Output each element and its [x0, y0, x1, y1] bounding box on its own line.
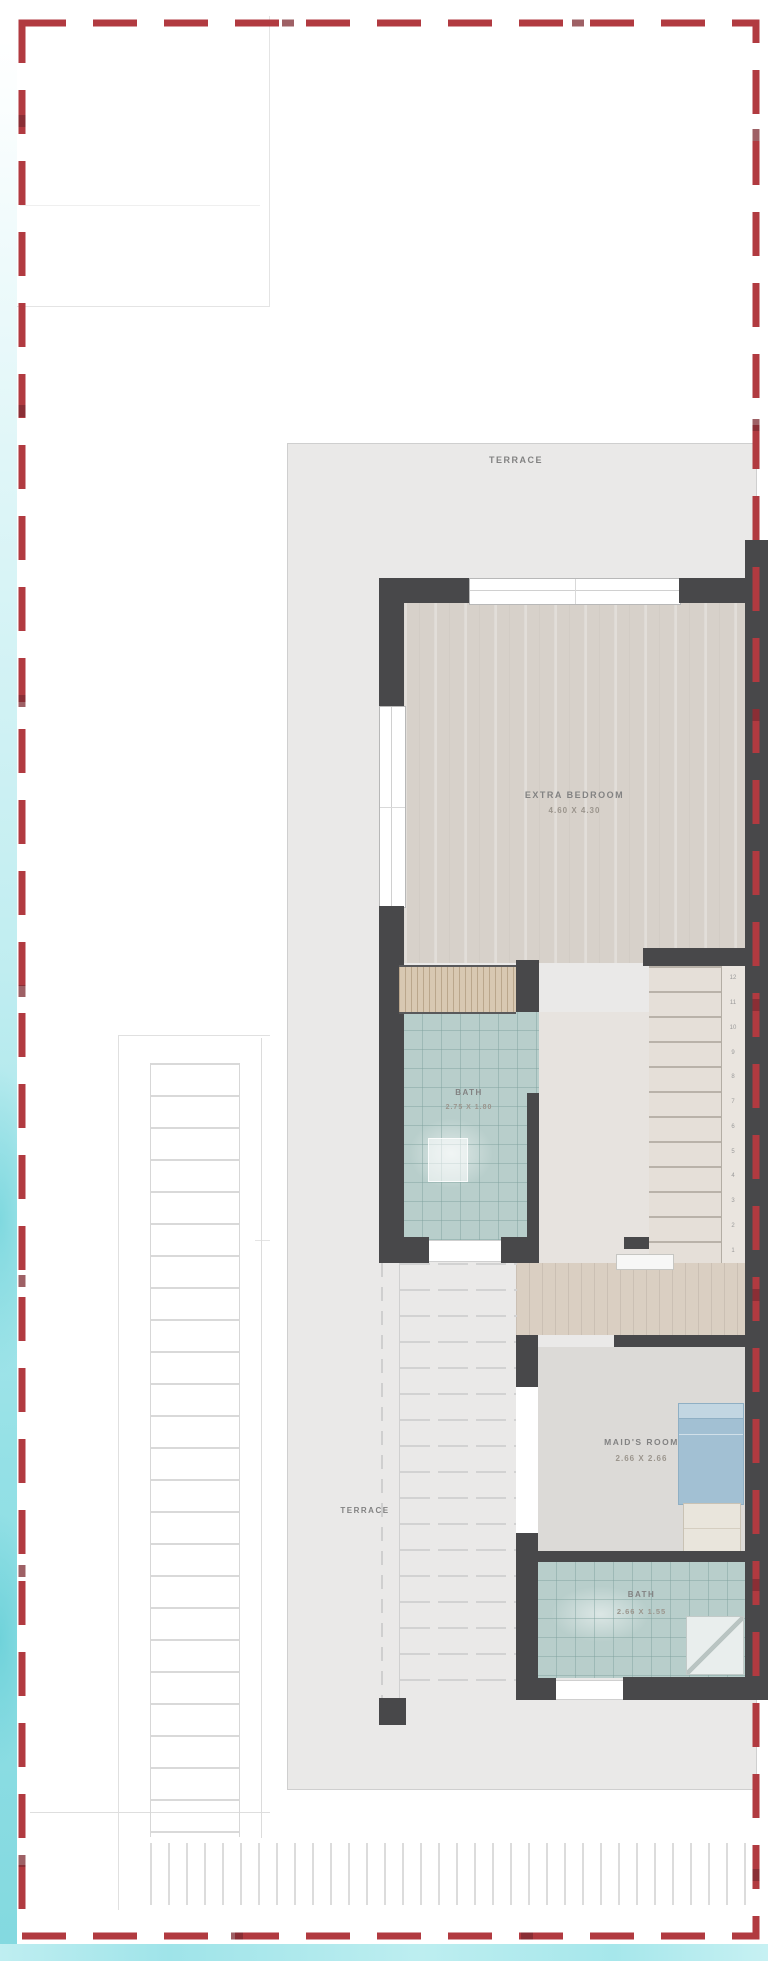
terrace-side-label: TERRACE [300, 1506, 430, 1515]
corner-pillar [379, 1698, 406, 1725]
stair-step-number: 4 [721, 1164, 745, 1189]
bath1-right-wall [527, 1093, 539, 1240]
stair-step-number: 9 [721, 1040, 745, 1065]
hall-floor [539, 1012, 649, 1263]
bath1-floor [404, 1012, 539, 1240]
maids-top-wall [614, 1335, 745, 1347]
right-boundary-wall [745, 540, 768, 1700]
bath2-bottom-wall-left [519, 1678, 556, 1700]
maids-room-label: MAID'S ROOM [538, 1437, 745, 1447]
stair-step-number: 5 [721, 1139, 745, 1164]
pergola-rail [261, 1038, 262, 1838]
bedroom-window-top [469, 578, 681, 605]
terrace-top-label: TERRACE [287, 455, 745, 465]
stairs-top-wall [643, 948, 745, 966]
left-wall-lower [379, 906, 404, 1263]
bath1-bottom-wall-right [501, 1237, 539, 1263]
bedroom-floor [404, 603, 745, 963]
bedroom-wall-left-upper [379, 578, 404, 706]
extra-bedroom-label: EXTRA BEDROOM [404, 790, 745, 800]
maids-bottom-wall [538, 1551, 745, 1562]
bath2-dims: 2.66 X 1.55 [538, 1607, 745, 1616]
extra-bedroom-dims: 4.60 X 4.30 [404, 806, 745, 815]
stair-step-number: 3 [721, 1189, 745, 1214]
bath2-bottom-wall-right [623, 1677, 746, 1700]
stair-step-number: 6 [721, 1115, 745, 1140]
watercolor-bottom-strip [0, 1944, 768, 1961]
maids-left-wall-lower [516, 1533, 538, 1700]
bath2-shower [686, 1616, 744, 1675]
floorplan-canvas: TERRACE EXTRA BEDROOM 4.60 X 4.30 121110… [0, 0, 768, 1961]
bedroom-window-left [379, 706, 406, 908]
terrace-side-hatch [399, 1263, 517, 1700]
stair-step-number: 7 [721, 1090, 745, 1115]
bedroom-wall-top-right [679, 578, 745, 603]
stairs-treads [649, 966, 721, 1263]
stair-step-number: 1 [721, 1238, 745, 1263]
stairs-step-numbers: 121110987654321 [721, 966, 745, 1263]
stair-step-number: 2 [721, 1214, 745, 1239]
maids-room-dims: 2.66 X 2.66 [538, 1454, 745, 1463]
bath1-shower-tray [428, 1138, 468, 1182]
bath1-label: BATH [404, 1088, 534, 1097]
closet-shelves [399, 965, 516, 1014]
bath2-door-opening [556, 1680, 623, 1700]
stair-step-number: 12 [721, 966, 745, 991]
bg-guideline-h-upper [20, 205, 260, 206]
stair-step-number: 10 [721, 1016, 745, 1041]
closet-end-wall [516, 960, 539, 1012]
landing-floor [516, 1263, 745, 1335]
site-boundary-v [118, 1035, 119, 1910]
stairs-base-cabinet [616, 1254, 674, 1270]
stair-step-number: 11 [721, 991, 745, 1016]
terrace-edge-dashed-line [381, 1263, 383, 1700]
maids-dresser [683, 1503, 741, 1552]
stairs-bottom-wall-piece [624, 1237, 649, 1249]
bath1-dims: 2.75 X 1.80 [404, 1104, 534, 1111]
maids-left-wall-upper [516, 1335, 538, 1387]
bath2-label: BATH [538, 1590, 745, 1599]
fence-band [150, 1843, 748, 1905]
bath1-bottom-wall-left [379, 1237, 429, 1263]
bg-guideline-v-upper [269, 16, 270, 306]
maids-door-opening [516, 1387, 538, 1533]
stair-step-number: 8 [721, 1065, 745, 1090]
pergola-ladder [150, 1063, 240, 1837]
bath1-door-opening [429, 1240, 501, 1262]
stairs-rail-line [721, 966, 722, 1263]
site-boundary-h [118, 1035, 288, 1036]
watercolor-left-band [0, 40, 17, 1944]
